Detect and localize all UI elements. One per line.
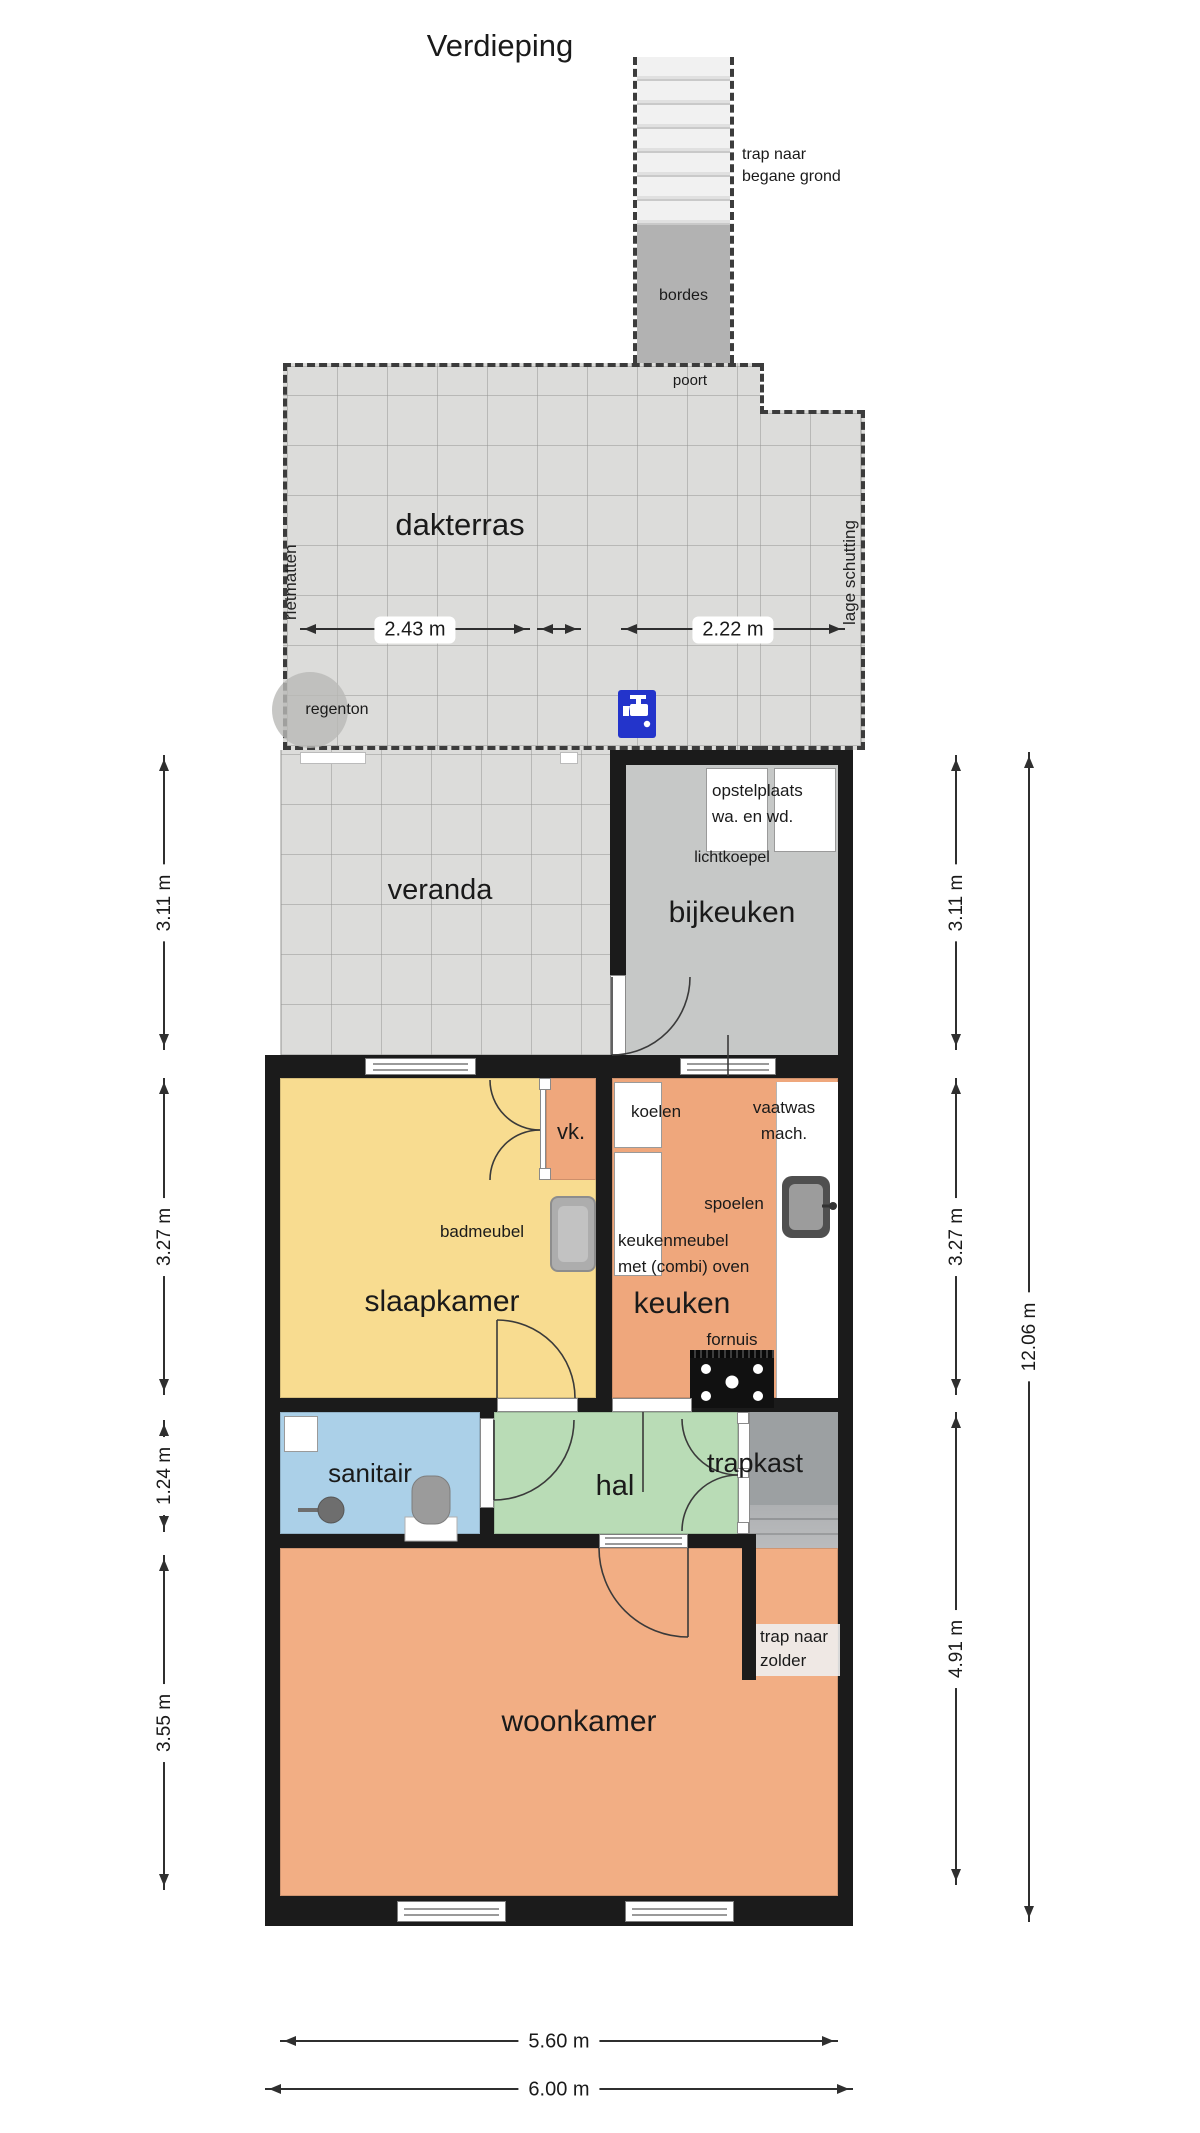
stair-label-line1: trap naar <box>742 146 902 168</box>
vk-label: vk. <box>546 1120 596 1144</box>
sanitair-label: sanitair <box>290 1458 450 1488</box>
floorplan-canvas: Verdieping bordes trap naar begane grond… <box>0 0 1200 2133</box>
dim-right-1: 3.11 m <box>955 755 957 1050</box>
sink-handle <box>822 1202 837 1210</box>
terrace-dim-left-label: 2.43 m <box>374 617 455 644</box>
cabinet-label-line1: keukenmeubel <box>618 1230 803 1252</box>
dim-left-2: 3.27 m <box>163 1078 165 1395</box>
bijkeuken-label: bijkeuken <box>627 896 837 930</box>
washer-label-line2: wa. en wd. <box>712 806 842 828</box>
right-fence-label: lage schutting <box>840 520 860 625</box>
rain-barrel-label: regenton <box>262 700 412 720</box>
woonkamer-label: woonkamer <box>449 1704 709 1740</box>
washer-label-line1: opstelplaats <box>712 780 842 802</box>
dim-right-3: 4.91 m <box>955 1412 957 1885</box>
dim-left-3-label: 1.24 m <box>152 1437 178 1515</box>
dim-bottom-outer-label: 6.00 m <box>518 2077 599 2104</box>
dim-left-1: 3.11 m <box>163 755 165 1050</box>
terrace-dim-middle <box>537 628 581 630</box>
landing-label: bordes <box>637 286 730 306</box>
stove-burners <box>701 1364 763 1401</box>
dim-right-2: 3.27 m <box>955 1078 957 1395</box>
dim-left-3: 1.24 m <box>163 1420 165 1532</box>
keuken-label: keuken <box>592 1286 772 1322</box>
gate-label: poort <box>650 370 730 390</box>
dim-left-4: 3.55 m <box>163 1555 165 1890</box>
veranda-label: veranda <box>330 872 550 908</box>
page-title: Verdieping <box>350 28 650 64</box>
dishwasher-label-line2: mach. <box>734 1124 834 1144</box>
cabinet-label-line2: met (combi) oven <box>618 1256 803 1278</box>
fridge-label: koelen <box>616 1102 696 1122</box>
skylight-label: lichtkoepel <box>647 848 817 868</box>
dim-bottom-outer: 6.00 m <box>265 2088 853 2090</box>
badmeubel-label: badmeubel <box>402 1222 562 1242</box>
dim-right-total-label: 12.06 m <box>1017 1293 1043 1382</box>
dishwasher-label-line1: vaatwas <box>734 1098 834 1118</box>
door-swing-overlay <box>0 0 1200 2133</box>
sink-label: spoelen <box>674 1194 794 1214</box>
dim-right-3-label: 4.91 m <box>944 1609 970 1687</box>
dim-left-1-label: 3.11 m <box>152 864 178 941</box>
left-fence-label: rietmatten <box>281 544 301 620</box>
attic-stair-label-line1: trap naar <box>760 1626 840 1648</box>
dim-bottom-inner: 5.60 m <box>280 2040 838 2042</box>
terrace-dim-right-label: 2.22 m <box>692 617 773 644</box>
dim-left-4-label: 3.55 m <box>152 1683 178 1761</box>
stove-label: fornuis <box>672 1330 792 1350</box>
washbasin-icon <box>298 1497 344 1523</box>
trapkast-label: trapkast <box>660 1448 850 1478</box>
attic-stair-label-line2: zolder <box>760 1650 840 1672</box>
dim-left-2-label: 3.27 m <box>152 1197 178 1275</box>
dim-right-1-label: 3.11 m <box>944 864 970 941</box>
terrace-dim-right: 2.22 m <box>621 628 845 630</box>
terrace-dim-left: 2.43 m <box>300 628 530 630</box>
dim-right-total: 12.06 m <box>1028 752 1030 1922</box>
hal-label: hal <box>570 1470 660 1502</box>
stair-label-line2: begane grond <box>742 168 902 190</box>
terrace-label: dakterras <box>330 505 590 545</box>
dim-bottom-inner-label: 5.60 m <box>518 2029 599 2056</box>
dim-right-2-label: 3.27 m <box>944 1197 970 1275</box>
slaapkamer-label: slaapkamer <box>312 1284 572 1320</box>
